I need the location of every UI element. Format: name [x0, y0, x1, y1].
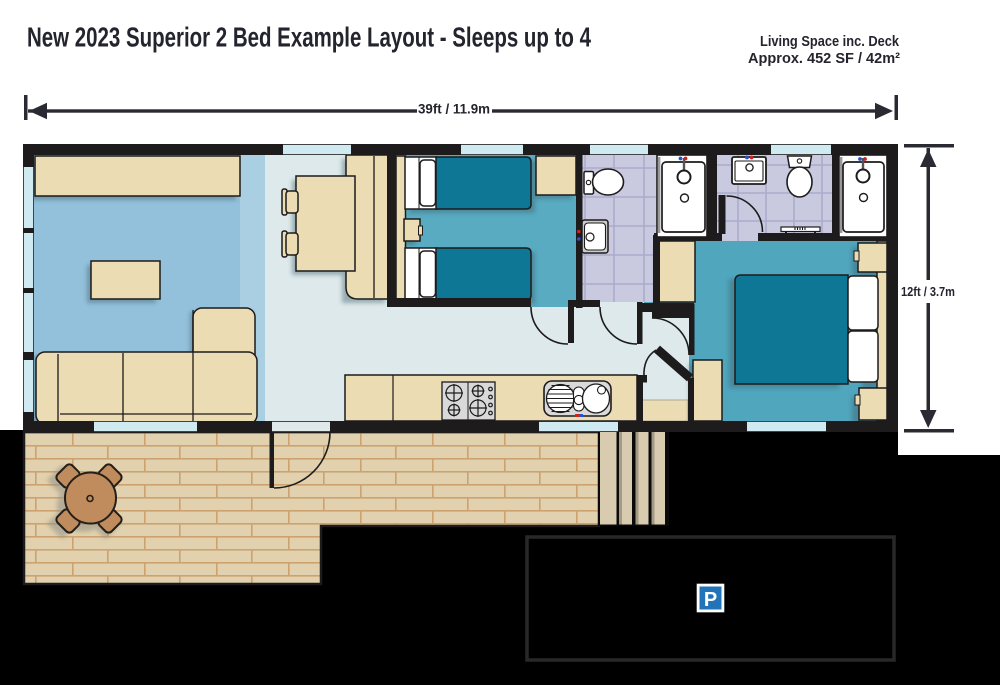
svg-text:Approx. 452 SF / 42m²: Approx. 452 SF / 42m²: [748, 50, 900, 67]
svg-text:12ft / 3.7m: 12ft / 3.7m: [901, 285, 955, 299]
svg-text:39ft / 11.9m: 39ft / 11.9m: [418, 102, 490, 117]
svg-text:Living Space inc. Deck: Living Space inc. Deck: [760, 33, 900, 50]
svg-text:P: P: [704, 589, 717, 611]
svg-text:New 2023 Superior 2 Bed Exampl: New 2023 Superior 2 Bed Example Layout -…: [27, 22, 592, 53]
